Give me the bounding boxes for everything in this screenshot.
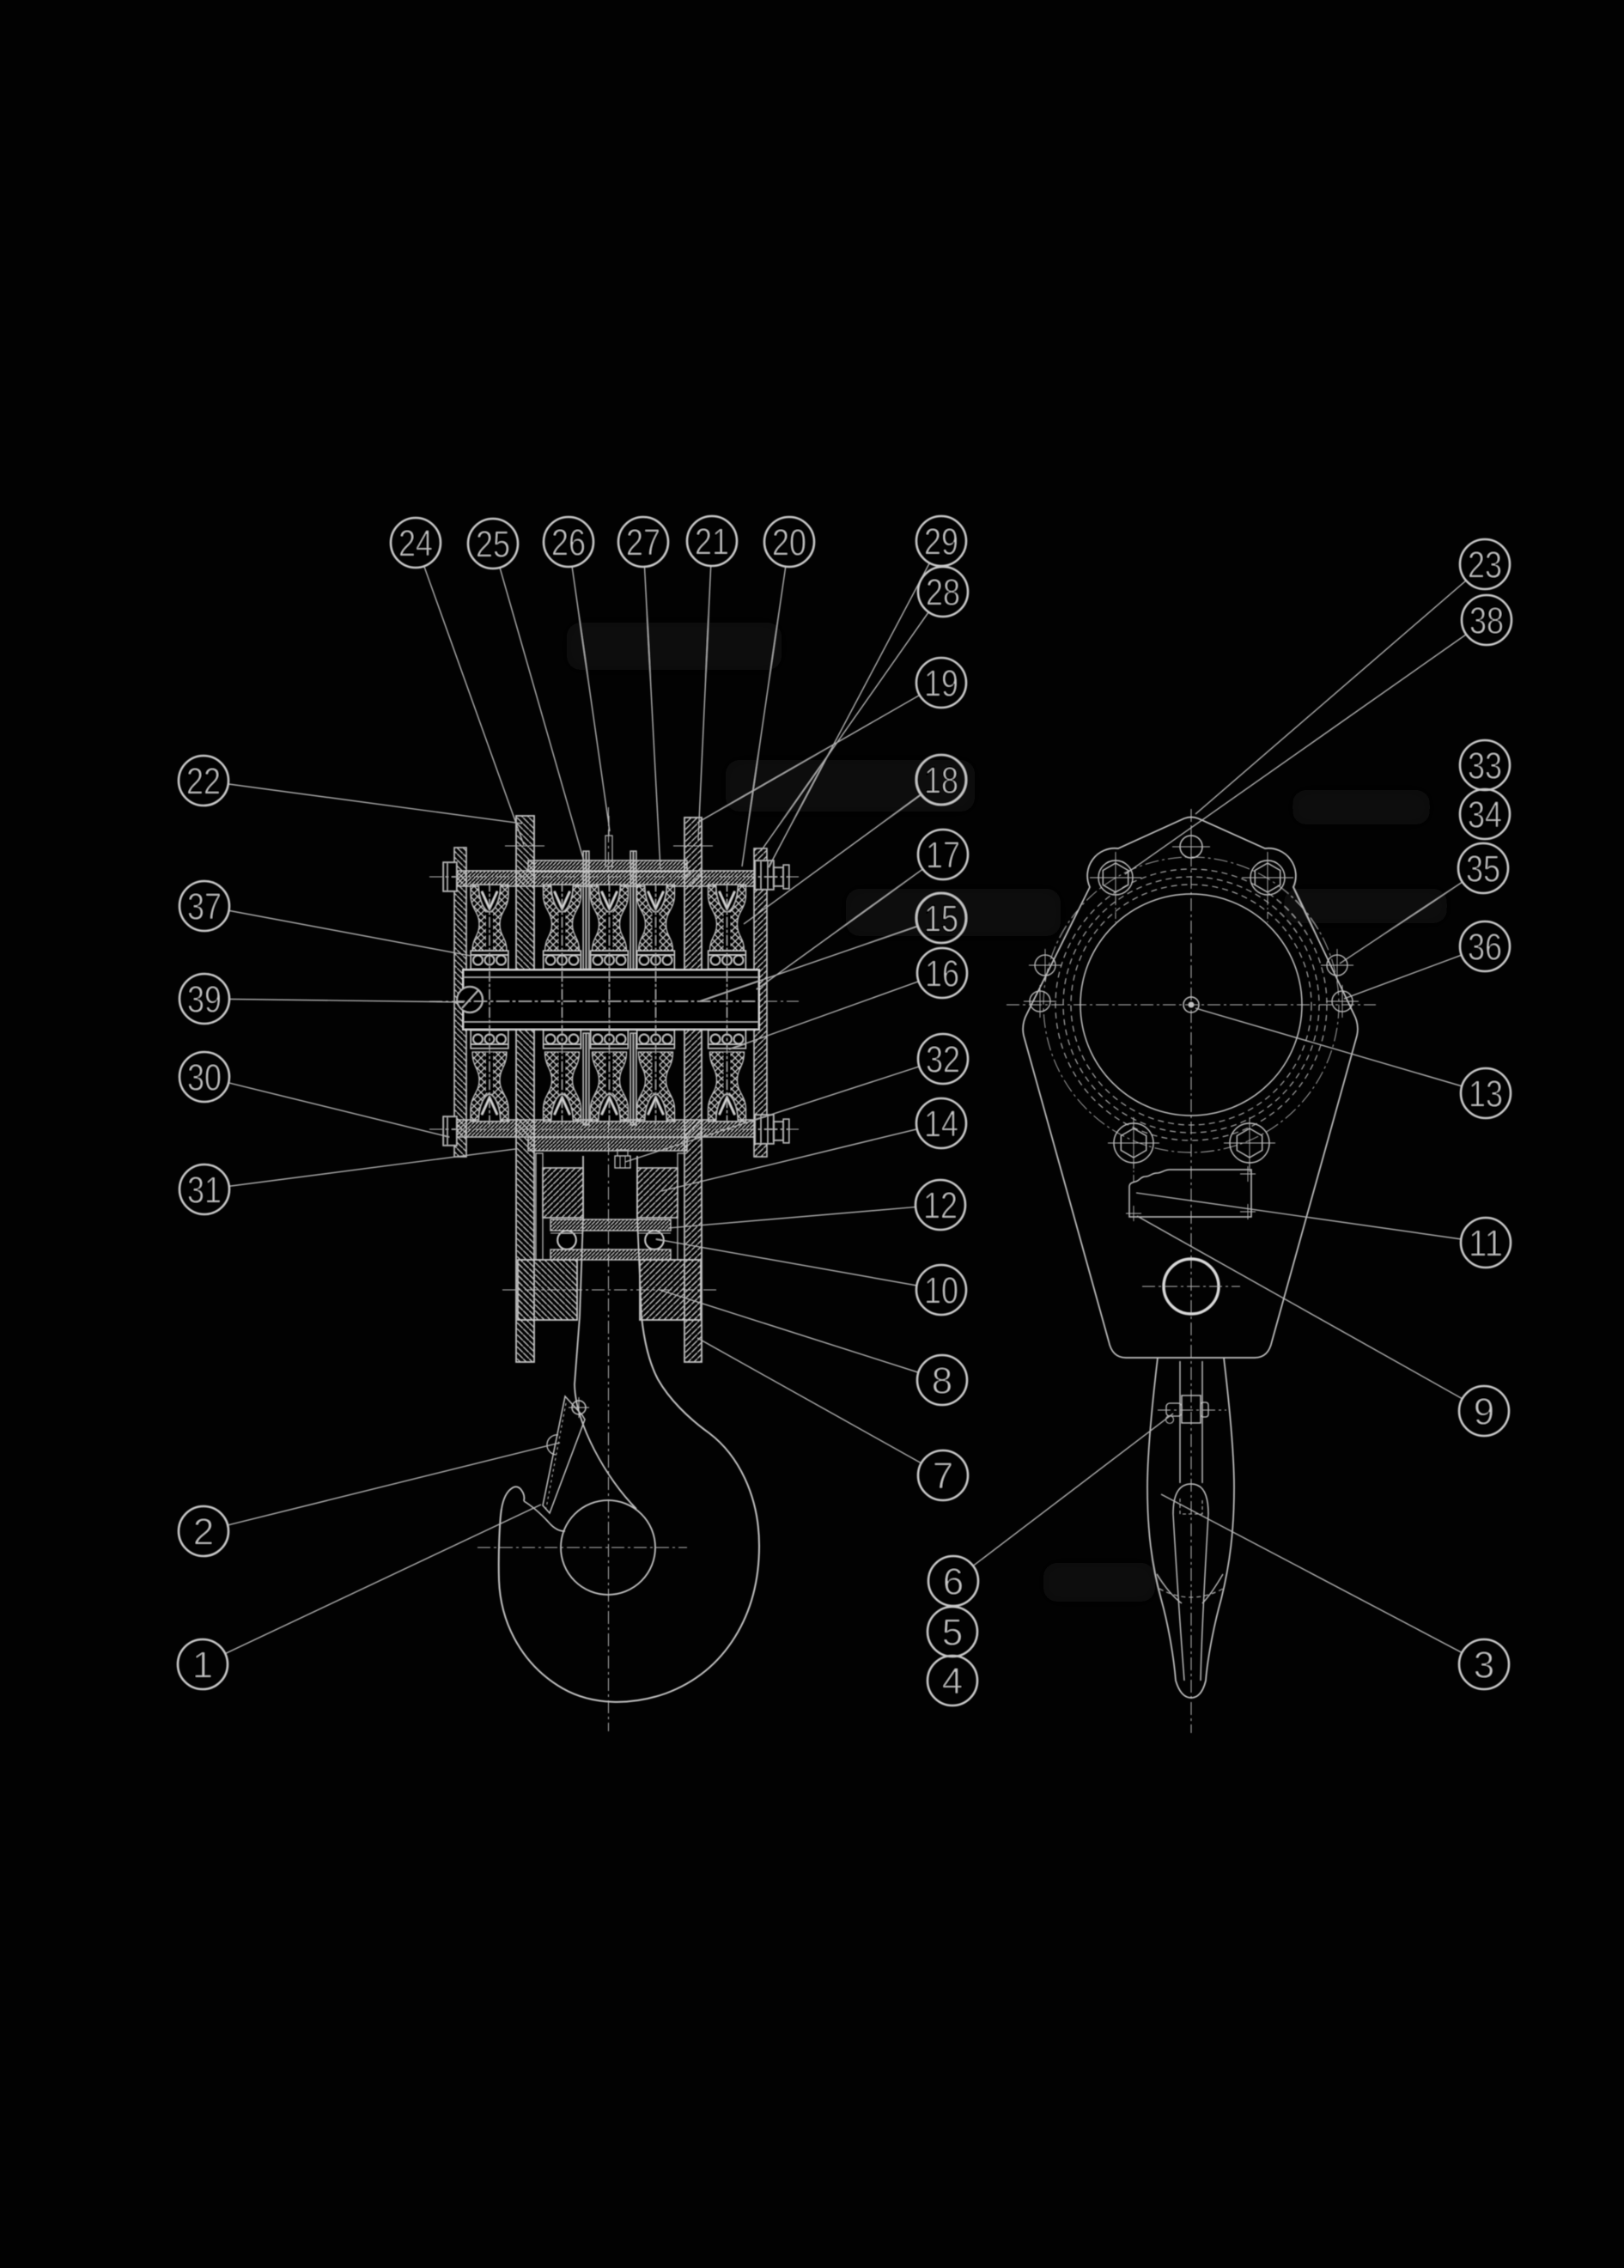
svg-text:6: 6	[943, 1561, 964, 1603]
svg-text:12: 12	[923, 1185, 958, 1227]
svg-text:3: 3	[1474, 1645, 1494, 1687]
svg-text:14: 14	[924, 1104, 958, 1146]
svg-text:13: 13	[1469, 1073, 1503, 1116]
svg-text:21: 21	[695, 521, 729, 563]
svg-text:4: 4	[942, 1661, 963, 1703]
svg-text:2: 2	[193, 1511, 214, 1554]
svg-text:26: 26	[551, 522, 586, 564]
svg-text:27: 27	[626, 522, 660, 564]
svg-text:17: 17	[926, 835, 960, 877]
svg-text:37: 37	[187, 886, 222, 928]
svg-text:16: 16	[925, 953, 959, 995]
svg-text:22: 22	[186, 761, 221, 803]
svg-text:8: 8	[932, 1360, 952, 1402]
svg-text:31: 31	[187, 1170, 222, 1212]
svg-text:38: 38	[1469, 600, 1504, 642]
svg-text:33: 33	[1468, 745, 1502, 787]
svg-text:20: 20	[772, 522, 806, 564]
svg-text:25: 25	[476, 524, 510, 566]
svg-text:7: 7	[933, 1456, 953, 1498]
svg-text:29: 29	[924, 521, 958, 563]
svg-text:19: 19	[924, 663, 958, 705]
svg-text:39: 39	[187, 979, 222, 1021]
svg-text:5: 5	[942, 1612, 963, 1654]
svg-text:9: 9	[1474, 1391, 1494, 1433]
svg-text:35: 35	[1466, 848, 1500, 891]
svg-text:28: 28	[926, 572, 960, 614]
svg-text:15: 15	[924, 898, 958, 940]
svg-text:24: 24	[398, 523, 433, 565]
svg-text:10: 10	[924, 1270, 958, 1312]
svg-text:1: 1	[192, 1645, 213, 1687]
svg-text:32: 32	[926, 1039, 960, 1081]
svg-text:11: 11	[1469, 1223, 1503, 1265]
svg-text:30: 30	[187, 1057, 222, 1099]
svg-text:23: 23	[1468, 544, 1502, 587]
svg-text:34: 34	[1468, 794, 1502, 836]
svg-text:18: 18	[924, 760, 958, 802]
svg-text:36: 36	[1468, 927, 1502, 969]
